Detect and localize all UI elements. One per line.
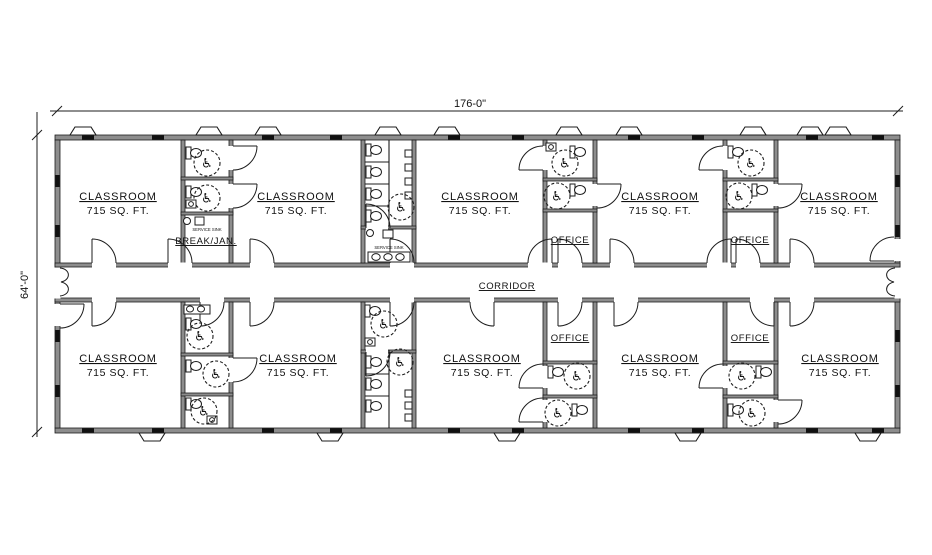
dimension-height-label: 64'-0" [19, 271, 31, 299]
sink-icon [186, 200, 196, 208]
room-label-classroom: CLASSROOM [441, 191, 519, 203]
step-icon [740, 127, 766, 135]
step-icon [675, 433, 701, 441]
toilet-icon [728, 404, 744, 416]
accessible-icon [371, 311, 397, 337]
floor-plan-drawing: ♿ 176-0" 64'-0" [0, 0, 932, 555]
door-swing-icon [519, 398, 543, 422]
door-swing-icon [790, 239, 814, 263]
room-area: 715 SQ. FT. [449, 205, 512, 217]
door-swing-icon [870, 237, 894, 261]
accessible-icon [726, 183, 752, 209]
step-icon [797, 127, 823, 135]
toilet-icon [572, 404, 588, 416]
sink-icon [372, 254, 380, 261]
door-swing-icon [597, 184, 621, 208]
accessible-icon [564, 363, 590, 389]
accessible-icon [194, 150, 220, 176]
restroom-fixtures-lower [184, 305, 772, 426]
door-swing-icon [250, 302, 274, 326]
toilet-icon [366, 144, 382, 156]
door-swing-icon [558, 302, 582, 326]
door-swing-icon [233, 184, 257, 208]
door-swing-icon [790, 302, 814, 326]
room-label-classroom: CLASSROOM [801, 353, 879, 365]
toilet-icon [186, 318, 202, 330]
step-icon [70, 127, 96, 135]
room-label-office: OFFICE [551, 333, 589, 344]
accessible-icon [194, 185, 220, 211]
corridor-label: CORRIDOR [479, 281, 536, 292]
toilet-icon [366, 356, 382, 368]
toilet-icon [366, 166, 382, 178]
room-label-classroom: CLASSROOM [800, 191, 878, 203]
room-area: 715 SQ. FT. [629, 367, 692, 379]
dimension-width-label: 176-0" [454, 98, 486, 110]
door-swing-icon [390, 302, 414, 326]
room-label-office: OFFICE [551, 235, 589, 246]
toilet-icon [365, 305, 381, 317]
door-swing-icon [614, 302, 638, 326]
room-label-classroom: CLASSROOM [259, 353, 337, 365]
door-swing-icon [750, 302, 774, 326]
room-area: 715 SQ. FT. [808, 205, 871, 217]
step-icon [434, 127, 460, 135]
sink-icon [546, 143, 556, 151]
room-label-office: OFFICE [731, 235, 769, 246]
toilet-icon [366, 400, 382, 412]
room-label-classroom: CLASSROOM [621, 191, 699, 203]
door-swing-icon [233, 358, 257, 382]
toilet-icon [548, 366, 564, 378]
room-area: 715 SQ. FT. [451, 367, 514, 379]
toilet-icon [570, 146, 586, 158]
step-icon [317, 433, 343, 441]
step-icon [375, 127, 401, 135]
service-sink-icon [195, 217, 204, 225]
step-icon [855, 433, 881, 441]
door-swing-icon [60, 304, 84, 328]
accessible-icon [739, 400, 765, 426]
dimension-height: 64'-0" [19, 112, 42, 437]
accessible-icon [552, 150, 578, 176]
room-label-classroom: CLASSROOM [79, 191, 157, 203]
dimension-width: 176-0" [50, 98, 903, 116]
double-door-icon [887, 268, 895, 296]
toilet-icon [570, 184, 586, 196]
door-swing-icon [707, 239, 731, 263]
room-area: 715 SQ. FT. [809, 367, 872, 379]
door-swing-icon [92, 239, 116, 263]
room-area: 715 SQ. FT. [87, 205, 150, 217]
door-swing-icon [92, 302, 116, 326]
toilet-icon [752, 184, 768, 196]
sink-icon [384, 254, 392, 261]
corridor-walls [55, 263, 900, 302]
room-label-break-jan: BREAK/JAN. [175, 236, 236, 247]
accessible-icon [738, 150, 764, 176]
step-icon [825, 127, 851, 135]
room-label-classroom: CLASSROOM [443, 353, 521, 365]
service-sink-icon [383, 230, 393, 238]
door-swing-icon [528, 239, 552, 263]
sink-icon [365, 338, 375, 346]
door-swing-icon [699, 364, 723, 388]
shelf-icon [405, 402, 412, 409]
accessible-icon [544, 183, 570, 209]
toilet-icon [756, 366, 772, 378]
toilet-icon [366, 210, 382, 222]
room-label-office: OFFICE [731, 333, 769, 344]
door-swing-icon [699, 146, 723, 170]
door-swing-icon [778, 400, 802, 424]
step-icon [139, 433, 165, 441]
door-swing-icon [470, 302, 494, 326]
shelf-icon [405, 150, 412, 157]
step-icon [616, 127, 642, 135]
step-icon [255, 127, 281, 135]
shelf-icon [405, 178, 412, 185]
accessible-icon [388, 194, 414, 220]
room-area: 715 SQ. FT. [87, 367, 150, 379]
step-icon [556, 127, 582, 135]
floor-drain-icon [367, 230, 374, 237]
shelf-icon [405, 390, 412, 397]
double-door-icon [60, 268, 68, 296]
service-sink-label: SERVICE SINK [374, 245, 403, 250]
service-sink-label: SERVICE SINK [192, 227, 221, 232]
sink-icon [396, 254, 404, 261]
room-label-classroom: CLASSROOM [621, 353, 699, 365]
door-swing-icon [250, 239, 274, 263]
toilet-icon [366, 188, 382, 200]
accessible-icon [545, 400, 571, 426]
shelf-icon [405, 164, 412, 171]
floor-plan-page: ♿ 176-0" 64'-0" [0, 0, 932, 555]
accessible-icon [191, 398, 217, 424]
toilet-icon [186, 360, 202, 372]
door-swing-icon [610, 239, 634, 263]
door-swing-icon [519, 364, 543, 388]
room-label-classroom: CLASSROOM [79, 353, 157, 365]
room-area: 715 SQ. FT. [267, 367, 330, 379]
accessible-icon [203, 361, 229, 387]
room-area: 715 SQ. FT. [629, 205, 692, 217]
door-swing-icon [778, 184, 802, 208]
toilet-icon [728, 146, 744, 158]
room-label-classroom: CLASSROOM [257, 191, 335, 203]
door-swing-icon [233, 146, 257, 170]
door-swing-icon [519, 146, 543, 170]
step-icon [494, 433, 520, 441]
sink-icon [187, 306, 194, 312]
room-area: 715 SQ. FT. [265, 205, 328, 217]
toilet-icon [366, 378, 382, 390]
accessible-icon [729, 363, 755, 389]
step-icon [196, 127, 222, 135]
floor-drain-icon [184, 218, 191, 225]
shelf-icon [405, 414, 412, 421]
sink-icon [198, 306, 205, 312]
